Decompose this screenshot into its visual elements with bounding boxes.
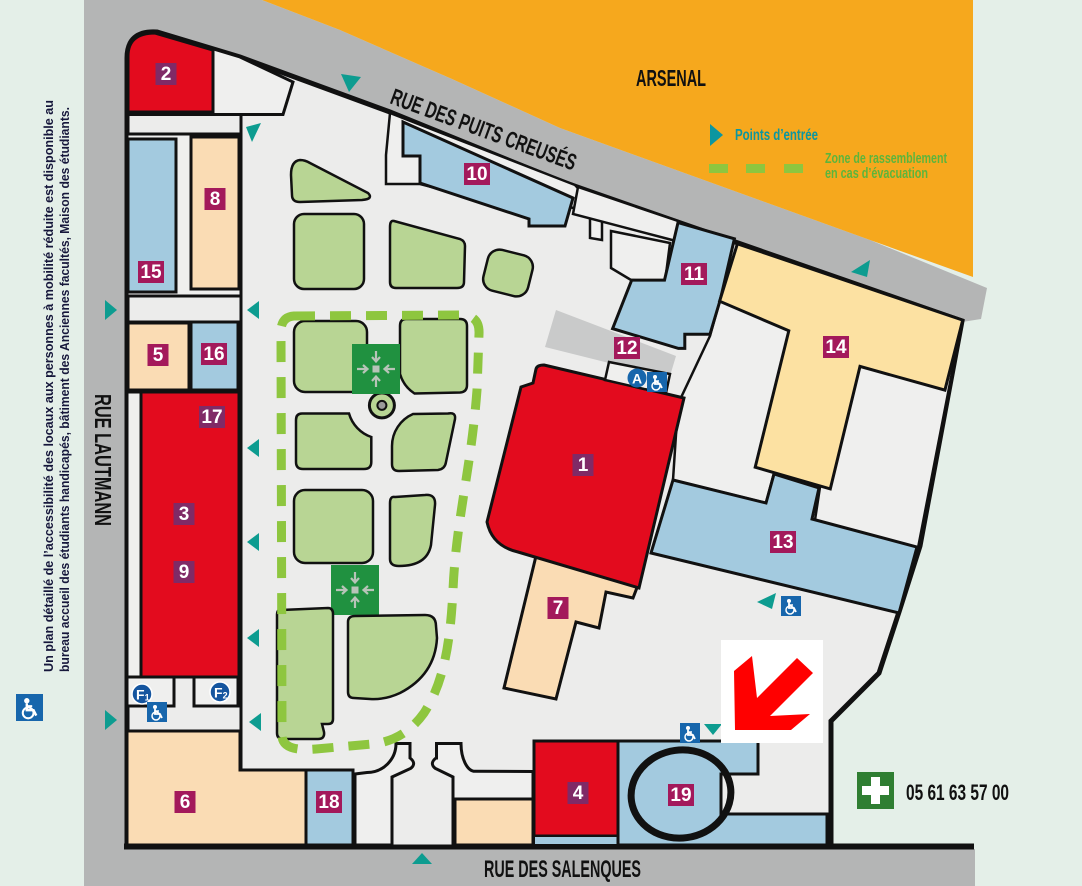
svg-text:18: 18 xyxy=(318,792,339,813)
svg-text:19: 19 xyxy=(670,785,691,806)
svg-text:12: 12 xyxy=(616,338,637,359)
svg-text:05 61 63 57 00: 05 61 63 57 00 xyxy=(906,780,1009,805)
svg-text:Un plan détaillé de l’accessib: Un plan détaillé de l’accessibilité des … xyxy=(42,100,56,672)
svg-text:2: 2 xyxy=(161,64,172,85)
svg-text:15: 15 xyxy=(140,262,162,283)
svg-text:en cas d’évacuation: en cas d’évacuation xyxy=(825,166,928,182)
svg-text:Zone de rassemblement: Zone de rassemblement xyxy=(825,151,947,167)
svg-text:14: 14 xyxy=(825,337,847,358)
svg-text:4: 4 xyxy=(573,783,584,804)
svg-text:ARSENAL: ARSENAL xyxy=(636,65,706,91)
svg-text:13: 13 xyxy=(772,532,793,553)
svg-text:8: 8 xyxy=(210,189,221,210)
svg-text:5: 5 xyxy=(153,345,164,366)
svg-text:7: 7 xyxy=(553,598,564,619)
svg-text:bureau accueil des étudiants h: bureau accueil des étudiants handicapés,… xyxy=(58,107,72,672)
svg-text:RUE DES SALENQUES: RUE DES SALENQUES xyxy=(484,856,641,883)
svg-text:10: 10 xyxy=(466,164,487,185)
svg-text:1: 1 xyxy=(578,455,589,476)
svg-text:RUE LAUTMANN: RUE LAUTMANN xyxy=(90,394,116,526)
svg-text:3: 3 xyxy=(179,504,190,525)
svg-text:6: 6 xyxy=(180,792,191,813)
svg-text:A: A xyxy=(632,371,642,387)
svg-text:11: 11 xyxy=(684,264,705,285)
svg-text:17: 17 xyxy=(201,407,222,428)
svg-text:9: 9 xyxy=(179,562,190,583)
svg-text:16: 16 xyxy=(203,344,224,365)
svg-text:Points d’entrée: Points d’entrée xyxy=(735,127,818,144)
